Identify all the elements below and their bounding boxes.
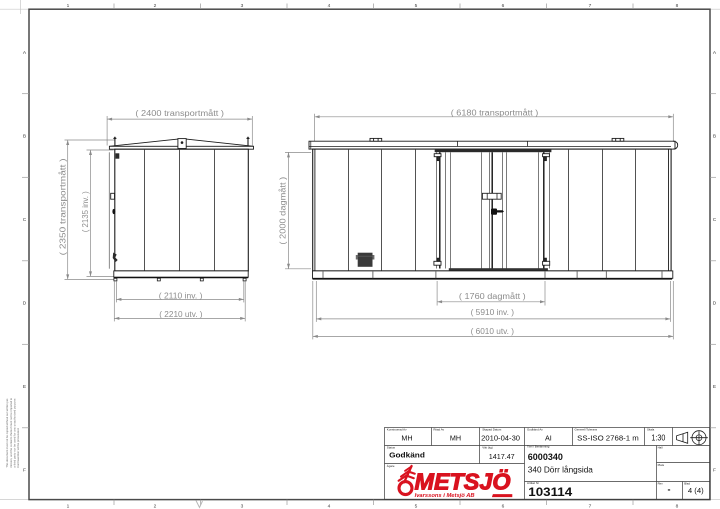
svg-text:Artikel Nr: Artikel Nr — [527, 481, 539, 485]
svg-text:-: - — [668, 485, 671, 495]
svg-text:Godkänd Av: Godkänd Av — [527, 428, 543, 432]
svg-text:Konstruerad Av: Konstruerad Av — [387, 428, 407, 432]
svg-text:Rev: Rev — [658, 481, 664, 485]
svg-text:B: B — [713, 134, 716, 140]
svg-text:4 (4): 4 (4) — [688, 486, 704, 495]
svg-text:Ägare: Ägare — [387, 464, 395, 468]
svg-text:AI: AI — [545, 433, 552, 442]
svg-text:( 2135 inv. ): ( 2135 inv. ) — [81, 191, 90, 232]
svg-text:Ritad Av: Ritad Av — [433, 428, 444, 432]
svg-text:1: 1 — [67, 504, 70, 509]
svg-text:( 6010 utv. ): ( 6010 utv. ) — [471, 327, 515, 336]
svg-text:Status: Status — [387, 446, 396, 450]
svg-text:METSJÖ: METSJÖ — [415, 468, 511, 494]
svg-text:F: F — [23, 468, 26, 474]
svg-text:C: C — [713, 217, 717, 223]
svg-text:E: E — [713, 384, 716, 390]
svg-text:Hall: Hall — [658, 446, 663, 450]
svg-text:8: 8 — [676, 3, 679, 9]
svg-text:Vikt (kg): Vikt (kg) — [482, 446, 493, 450]
svg-text:( 2400 transportmått ): ( 2400 transportmått ) — [135, 109, 224, 118]
svg-text:340 Dörr långsida: 340 Dörr långsida — [528, 465, 593, 475]
svg-text:1417.47: 1417.47 — [489, 452, 515, 461]
svg-text:( 1760 dagmått ): ( 1760 dagmått ) — [459, 292, 526, 301]
svg-text:Skapad Datum: Skapad Datum — [482, 428, 502, 432]
svg-text:MH: MH — [450, 433, 461, 442]
svg-text:1:30: 1:30 — [651, 432, 665, 442]
svg-text:( 6180 transportmått ): ( 6180 transportmått ) — [451, 108, 539, 117]
svg-text:6: 6 — [502, 504, 505, 509]
svg-text:( 2000 dagmått ): ( 2000 dagmått ) — [278, 176, 287, 244]
svg-text:2: 2 — [154, 3, 157, 9]
svg-text:Godkänd: Godkänd — [389, 450, 425, 459]
svg-text:5: 5 — [415, 3, 418, 9]
svg-text:C: C — [23, 217, 27, 223]
svg-text:( 2350 transportmått ): ( 2350 transportmått ) — [59, 158, 68, 255]
svg-text:4: 4 — [328, 3, 331, 9]
svg-text:103114: 103114 — [528, 486, 573, 499]
svg-text:Contravention will be prosecut: Contravention will be prosecuted. — [16, 428, 20, 468]
svg-text:D: D — [713, 301, 717, 307]
svg-text:5: 5 — [415, 504, 418, 509]
svg-text:2010-04-30: 2010-04-30 — [481, 433, 520, 442]
svg-text:( 2210 utv. ): ( 2210 utv. ) — [159, 310, 203, 319]
svg-text:7: 7 — [589, 3, 592, 9]
svg-text:8: 8 — [676, 504, 679, 509]
svg-text:3: 3 — [241, 3, 244, 9]
svg-text:Generell Tolerans: Generell Tolerans — [575, 428, 598, 432]
svg-text:Titel / Benämning: Titel / Benämning — [527, 445, 550, 449]
svg-text:2: 2 — [154, 504, 157, 509]
svg-text:6: 6 — [502, 3, 505, 9]
svg-text:7: 7 — [589, 504, 592, 509]
svg-text:Skala: Skala — [647, 428, 655, 432]
svg-text:3: 3 — [241, 504, 244, 509]
svg-text:E: E — [23, 384, 26, 390]
svg-text:F: F — [713, 468, 716, 474]
svg-text:1: 1 — [67, 3, 70, 9]
svg-text:SS-ISO 2768-1 m: SS-ISO 2768-1 m — [577, 433, 639, 442]
svg-text:6000340: 6000340 — [528, 452, 563, 462]
svg-text:( 5910 inv. ): ( 5910 inv. ) — [471, 308, 515, 317]
svg-text:4: 4 — [328, 504, 331, 509]
svg-text:D: D — [23, 301, 27, 307]
svg-text:Plats: Plats — [658, 463, 665, 467]
svg-text:B: B — [23, 134, 26, 140]
svg-text:Ivarssons i Metsjö AB: Ivarssons i Metsjö AB — [415, 493, 475, 499]
svg-text:MH: MH — [401, 433, 412, 442]
svg-text:Blad: Blad — [684, 481, 690, 485]
